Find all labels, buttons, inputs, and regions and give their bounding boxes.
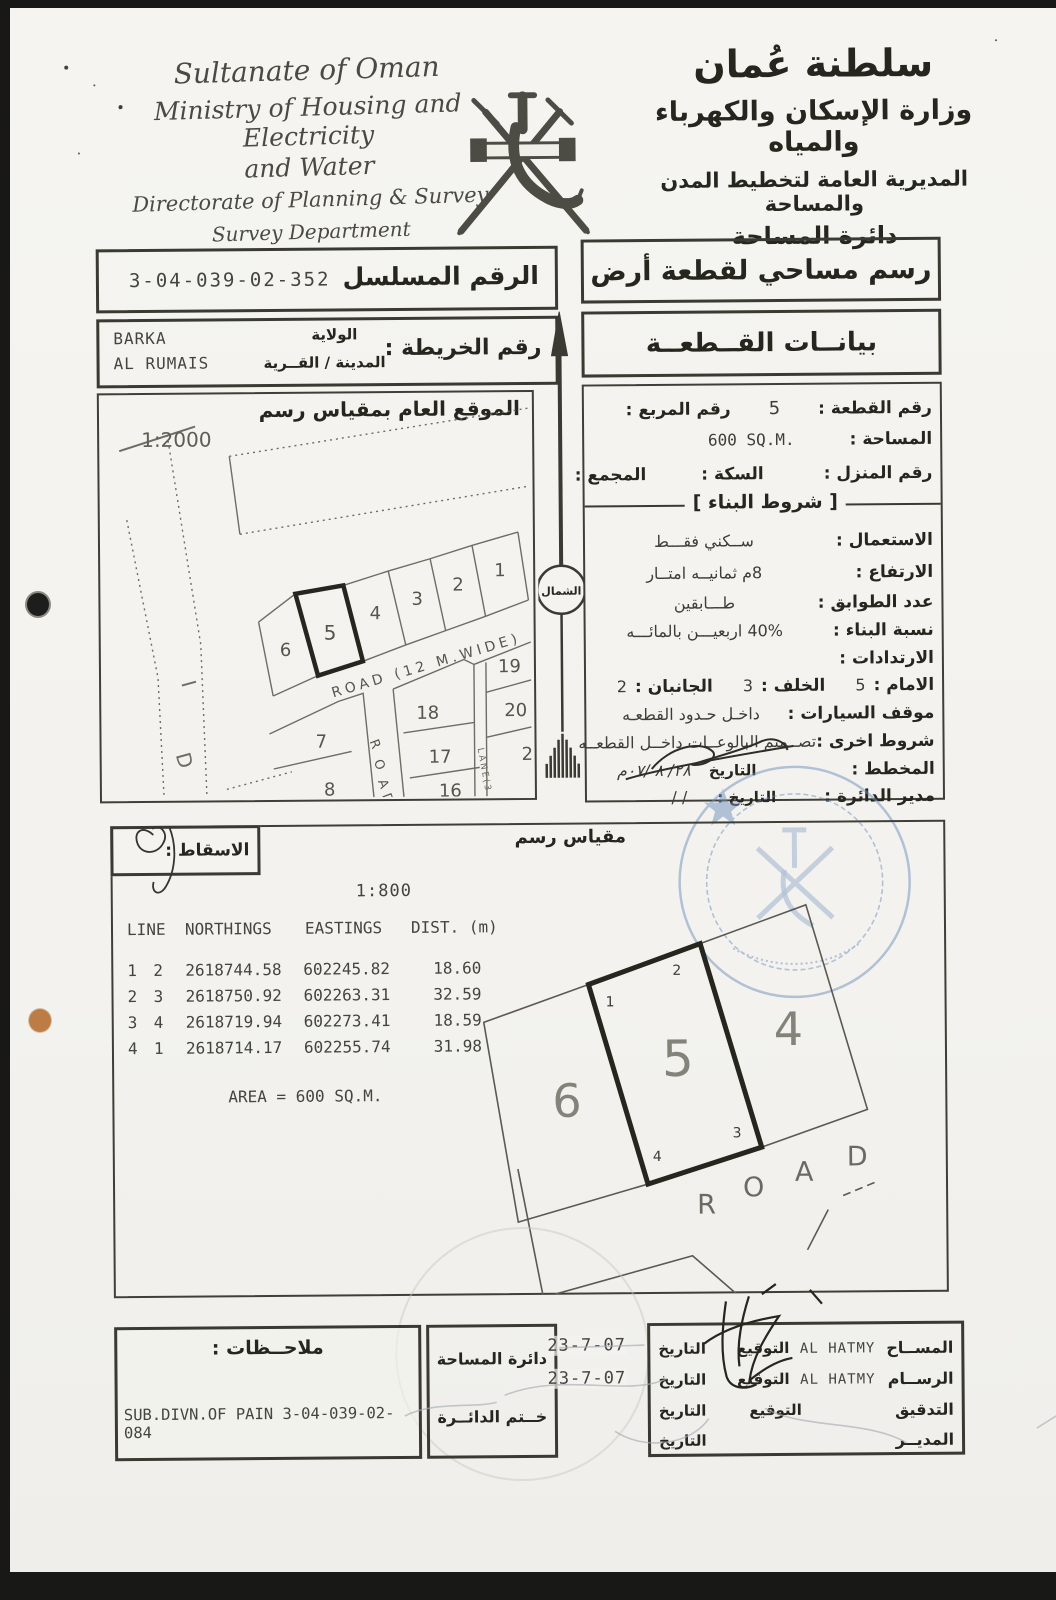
cell: 1 bbox=[127, 961, 153, 980]
drawing-scale-label: مقياس رسم bbox=[500, 826, 640, 848]
north-label: الشمال bbox=[541, 585, 581, 598]
cell: 4 bbox=[154, 1013, 186, 1032]
serial-number-value: 3-04-039-02-352 bbox=[129, 269, 331, 293]
road-letter-a: A bbox=[795, 1157, 814, 1188]
back-label: الخلف : bbox=[761, 676, 826, 697]
sides-value: 2 bbox=[617, 677, 627, 696]
corner-3: 3 bbox=[733, 1125, 742, 1141]
cell: 3 bbox=[128, 1013, 154, 1032]
cell: 31.98 bbox=[412, 1036, 482, 1056]
drawing-plot-4: 4 bbox=[774, 1002, 804, 1056]
arabic-header-ministry: وزارة الإسكان والكهرباء والمياه bbox=[612, 94, 1014, 159]
map-plot-19: 19 bbox=[498, 656, 521, 677]
draftsman-name: AL HATMY bbox=[800, 1371, 876, 1388]
arabic-header-directorate: المديرية العامة لتخطيط المدن والمساحة bbox=[613, 166, 1015, 217]
cell: 18.60 bbox=[411, 958, 481, 978]
map-road-v-o: O bbox=[370, 757, 388, 772]
hole-punch-orange bbox=[29, 1009, 51, 1032]
plot-number-row: رقم القطعة : 5 رقم المربع : bbox=[592, 397, 932, 421]
sig-row-draftsman: الرســام AL HATMY التوقيع التاريخ bbox=[650, 1369, 961, 1395]
wilaya-label: الولاية bbox=[274, 325, 394, 344]
use-label: الاستعمال : bbox=[815, 530, 933, 551]
projection-signature bbox=[125, 812, 216, 898]
map-plot-20: 20 bbox=[504, 700, 527, 721]
col-eastings: EASTINGS bbox=[305, 918, 411, 938]
plot-number-value: 5 bbox=[769, 398, 781, 419]
surveyor-role: المســاح bbox=[886, 1338, 953, 1358]
location-map-box: الموقع العام بمقياس رسم bbox=[97, 390, 537, 803]
oman-national-emblem-icon bbox=[444, 85, 601, 238]
front-label: الامام : bbox=[873, 675, 934, 695]
street-label: السكة : bbox=[701, 464, 764, 484]
map-number-box: BARKA AL RUMAIS الولاية المدينة / القــر… bbox=[96, 316, 559, 389]
surveyor-sig-label: التوقيع bbox=[737, 1339, 790, 1357]
coordinates-table: LINE NORTHINGS EASTINGS DIST. (m) 122618… bbox=[127, 917, 508, 1107]
sig-row-surveyor: المســاح AL HATMY التوقيع التاريخ bbox=[650, 1338, 961, 1364]
area-row: المساحة : 600 SQ.M. bbox=[592, 429, 932, 452]
complex-label: المجمع : bbox=[575, 465, 647, 486]
dept-stamp-label: خــتم الدائــرة bbox=[430, 1407, 555, 1427]
use-row: الاستعمال : ســكني فقـــط bbox=[593, 530, 933, 553]
height-row: الارتفاع : 8م ثمانيــه امتــار bbox=[593, 562, 933, 585]
draftsman-sig-label: التوقيع bbox=[737, 1370, 790, 1388]
map-scale-text: 1:2000 bbox=[141, 427, 212, 452]
cell: 18.59 bbox=[412, 1010, 482, 1030]
square-number-label: رقم المربع : bbox=[626, 399, 731, 420]
use-value: ســكني فقـــط bbox=[593, 531, 815, 552]
cell: 602255.74 bbox=[304, 1037, 412, 1057]
map-plot-7: 7 bbox=[315, 732, 327, 753]
front-value: 5 bbox=[855, 675, 865, 694]
other-conditions-label: شروط اخرى : bbox=[816, 731, 935, 752]
document-title-box: رسم مساحي لقطعة أرض bbox=[581, 237, 941, 304]
cell: 2618714.17 bbox=[186, 1038, 304, 1058]
house-row: رقم المنزل : السكة : المجمع : bbox=[592, 463, 932, 486]
map-road-v-d: D bbox=[378, 791, 396, 799]
city-label: المدينة / القــرية bbox=[249, 353, 399, 372]
map-number-label: رقم الخريطة : bbox=[385, 335, 542, 361]
map-plot-18: 18 bbox=[416, 703, 439, 724]
map-plot-4: 4 bbox=[369, 603, 381, 624]
drawing-plot-5: 5 bbox=[662, 1030, 694, 1088]
plot-number-label: رقم القطعة : bbox=[818, 398, 932, 419]
corner-2: 2 bbox=[672, 963, 681, 979]
floors-row: عدد الطوابق : طـــابقين bbox=[593, 592, 933, 615]
checker-date-label: التاريخ bbox=[659, 1402, 707, 1420]
location-map-drawing: 1:2000 1 2 3 4 5 6 7 8 18 17 16 19 bbox=[99, 392, 533, 799]
floors-value: طـــابقين bbox=[593, 593, 815, 614]
cell: 2618744.58 bbox=[185, 960, 303, 980]
cell: 2 bbox=[127, 987, 153, 1006]
scan-edge-bottom bbox=[0, 1572, 1056, 1600]
cell: 2 bbox=[153, 961, 185, 980]
surveyor-date-label: التاريخ bbox=[658, 1340, 706, 1358]
area-label: المساحة : bbox=[850, 429, 933, 450]
drawing-plot-6: 6 bbox=[552, 1074, 582, 1128]
sig-row-checker: التدقيق التوقيع التاريخ bbox=[651, 1400, 962, 1426]
serial-number-box: 3-04-039-02-352 الرقم المسلسل bbox=[96, 246, 558, 314]
cell: 4 bbox=[128, 1039, 154, 1058]
surveyor-name: AL HATMY bbox=[800, 1340, 876, 1357]
other-conditions-value: تصــميم البالوعــات داخــل القطعــه bbox=[578, 732, 816, 753]
cell: 2618750.92 bbox=[185, 986, 303, 1006]
date-surveyor: 23-7-07 bbox=[547, 1335, 626, 1356]
cell: 602273.41 bbox=[304, 1011, 412, 1031]
department-stamp-box: دائرة المساحة خــتم الدائــرة bbox=[426, 1324, 558, 1459]
other-conditions-row: شروط اخرى : تصــميم البالوعــات داخــل ا… bbox=[594, 731, 934, 754]
city-value: AL RUMAIS bbox=[113, 353, 209, 373]
ratio-row: نسبة البناء : 40% اربعيـــن بالمائـــه bbox=[594, 620, 934, 643]
map-plot-3: 3 bbox=[411, 589, 423, 610]
corner-1: 1 bbox=[606, 994, 615, 1010]
parking-value: داخـل حـدود القطعـه bbox=[594, 704, 787, 725]
scan-edge-left bbox=[0, 0, 10, 1600]
map-plot-6: 6 bbox=[280, 640, 292, 661]
ink-speckles bbox=[64, 66, 68, 70]
road-letter-r: R bbox=[697, 1190, 716, 1221]
plot-data-title-box: بيانــات القــطعــة bbox=[581, 309, 942, 378]
col-line: LINE bbox=[127, 920, 185, 939]
cell: 1 bbox=[154, 1039, 186, 1058]
notes-value: SUB.DIVN.OF PAIN 3-04-039-02-084 bbox=[124, 1404, 419, 1442]
coordinates-header: LINE NORTHINGS EASTINGS DIST. (m) bbox=[127, 917, 507, 939]
area-value: 600 SQ.M. bbox=[708, 430, 795, 450]
document-sheet: Sultanate of Oman Ministry of Housing an… bbox=[0, 0, 1056, 1600]
manager-date-label2: التاريخ bbox=[659, 1432, 707, 1450]
manager-role: المديــر bbox=[896, 1430, 955, 1449]
wilaya-value: BARKA bbox=[113, 329, 166, 348]
arabic-header: سلطنة عُمان وزارة الإسكان والكهرباء والم… bbox=[612, 40, 1016, 251]
serial-number-label: الرقم المسلسل bbox=[342, 261, 539, 292]
cell: 602263.31 bbox=[303, 985, 411, 1005]
signatures-box: المســاح AL HATMY التوقيع التاريخ الرســ… bbox=[647, 1321, 965, 1457]
cell: 2618719.94 bbox=[186, 1012, 304, 1032]
checker-sig-label: التوقيع bbox=[749, 1401, 802, 1419]
map-plot-5: 5 bbox=[324, 620, 337, 644]
setbacks-row: الارتدادات : bbox=[594, 648, 934, 671]
scan-edge-top bbox=[0, 0, 1056, 8]
main-scale-text: 1:800 bbox=[356, 881, 412, 901]
map-plot-16: 16 bbox=[439, 781, 462, 800]
setbacks-label: الارتدادات : bbox=[839, 648, 934, 669]
dept-name: دائرة المساحة bbox=[429, 1349, 554, 1369]
map-plot-8: 8 bbox=[324, 780, 336, 800]
house-number-label: رقم المنزل : bbox=[824, 463, 933, 484]
parking-row: موقف السيارات : داخـل حـدود القطعـه bbox=[594, 703, 934, 726]
height-label: الارتفاع : bbox=[815, 562, 933, 583]
ratio-value: 40% اربعيـــن بالمائـــه bbox=[594, 621, 816, 642]
map-wadi-d: D bbox=[171, 750, 198, 771]
road-letter-o: O bbox=[743, 1172, 765, 1203]
plot-data-title: بيانــات القــطعــة bbox=[646, 327, 878, 359]
cell: 3 bbox=[153, 987, 185, 1006]
coordinates-rows: 122618744.58602245.8218.60 232618750.926… bbox=[127, 958, 508, 1058]
back-value: 3 bbox=[743, 676, 753, 695]
map-plot-2b: 2 bbox=[522, 744, 533, 765]
map-plot-17: 17 bbox=[429, 747, 452, 768]
ratio-label: نسبة البناء : bbox=[816, 620, 934, 641]
scanned-survey-document: Sultanate of Oman Ministry of Housing an… bbox=[0, 0, 1056, 1600]
map-wadi-i: I bbox=[176, 678, 201, 690]
draftsman-date-label: التاريخ bbox=[658, 1371, 706, 1389]
area-total-line: AREA = 600 SQ.M. bbox=[228, 1085, 508, 1106]
building-conditions-title: [ شروط البناء ] bbox=[685, 490, 846, 513]
stamp-star-icon bbox=[704, 788, 742, 825]
checker-role: التدقيق bbox=[895, 1400, 954, 1419]
notes-box: ملاحــظات : SUB.DIVN.OF PAIN 3-04-039-02… bbox=[114, 1325, 422, 1461]
road-letter-d: D bbox=[847, 1141, 868, 1172]
map-plot-2: 2 bbox=[452, 574, 464, 595]
date-draftsman: 23-7-07 bbox=[547, 1368, 626, 1389]
col-northings: NORTHINGS bbox=[185, 919, 305, 939]
map-lane-label: LANE(3 bbox=[475, 747, 493, 793]
corner-4: 4 bbox=[653, 1149, 662, 1165]
notes-label: ملاحــظات : bbox=[117, 1336, 418, 1360]
cell: 602245.82 bbox=[303, 959, 411, 979]
parking-label: موقف السيارات : bbox=[788, 703, 935, 724]
cell: 32.59 bbox=[411, 984, 481, 1004]
height-value: 8م ثمانيــه امتــار bbox=[593, 563, 815, 584]
setback-values-row: الامام : 5 الخلف : 3 الجانبان : 2 bbox=[594, 675, 934, 698]
draftsman-role: الرســام bbox=[888, 1369, 954, 1389]
floors-label: عدد الطوابق : bbox=[815, 592, 933, 613]
map-road-v-a: A bbox=[374, 777, 391, 791]
document-title: رسم مساحي لقطعة أرض bbox=[590, 253, 931, 287]
arabic-header-country: سلطنة عُمان bbox=[612, 40, 1014, 87]
sig-row-manager: المديــر التاريخ bbox=[651, 1430, 962, 1456]
map-plot-1: 1 bbox=[494, 560, 506, 581]
plot-details-panel: رقم القطعة : 5 رقم المربع : المساحة : 60… bbox=[582, 382, 945, 803]
hole-punch-black bbox=[27, 593, 49, 616]
sides-label: الجانبان : bbox=[635, 677, 713, 698]
north-arrow-icon: الشمال bbox=[536, 308, 586, 790]
table-spacer bbox=[127, 936, 507, 961]
